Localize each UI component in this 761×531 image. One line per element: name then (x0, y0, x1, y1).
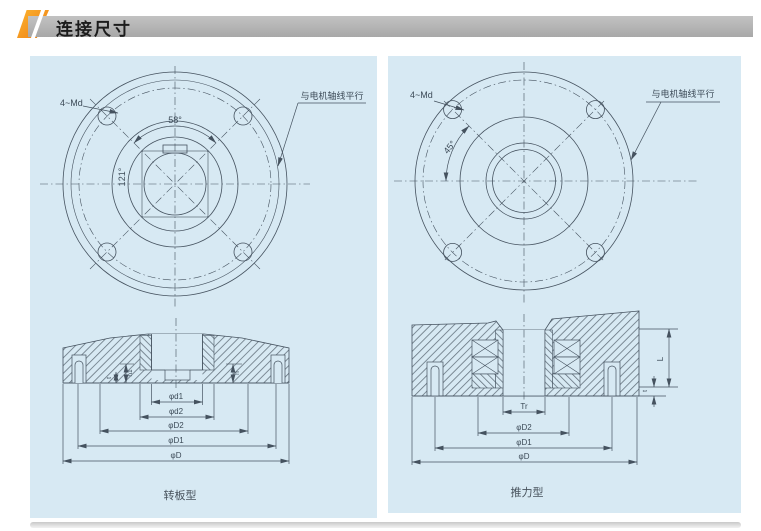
page-bottom-shadow (30, 522, 741, 528)
dim-label-h1: h1 (127, 369, 134, 377)
thrust-section-view (412, 311, 639, 402)
note-leader (631, 102, 661, 160)
dim-label-d1-dia: φd1 (169, 392, 184, 401)
bolt-pattern-label: 4~Md (60, 98, 83, 108)
thrust-type-drawing: 4~Md 45° 与电机轴线平行 (388, 56, 741, 513)
angle-top-label: 58° (168, 115, 182, 125)
dim-label-t: t (642, 390, 649, 392)
dim-label-D-dia: φD (171, 451, 182, 460)
angle-label: 45° (442, 138, 459, 155)
rotating-plate-drawing: 4~Md 58° 121° 与电机轴线平行 (30, 56, 377, 518)
dim-label-D1-dia: φD1 (516, 438, 532, 447)
axis-note-label: 与电机轴线平行 (300, 90, 363, 101)
dim-label-D1-dia: φD1 (168, 436, 184, 445)
dim-label-L: L (656, 356, 665, 361)
catalog-page: 连接尺寸 (0, 0, 761, 531)
height-dimensions (639, 329, 678, 407)
caption-rotating-plate: 转板型 (164, 488, 197, 502)
panel-thrust-type: 4~Md 45° 与电机轴线平行 (388, 56, 741, 513)
dim-label-D2-dia: φD2 (516, 423, 532, 432)
bolt-pattern-label: 4~Md (410, 90, 433, 100)
page-title: 连接尺寸 (56, 15, 132, 40)
dim-label-d2-dia: φd2 (169, 407, 184, 416)
dim-label-D2-dia: φD2 (168, 421, 184, 430)
dim-label-h: h (234, 371, 241, 375)
panel-rotating-plate-type: 4~Md 58° 121° 与电机轴线平行 (30, 56, 377, 518)
caption-thrust-type: 推力型 (511, 485, 544, 499)
section-header-bar (28, 16, 753, 37)
dim-label-D-dia: φD (519, 452, 530, 461)
note-leader (278, 103, 298, 166)
dim-label-t: t (106, 377, 113, 379)
angle-left-label: 121° (117, 167, 127, 186)
dim-label-Tr: Tr (520, 402, 528, 411)
flange-section-view (63, 318, 289, 390)
flange-plan-view (40, 66, 366, 308)
axis-note-label: 与电机轴线平行 (651, 88, 714, 99)
